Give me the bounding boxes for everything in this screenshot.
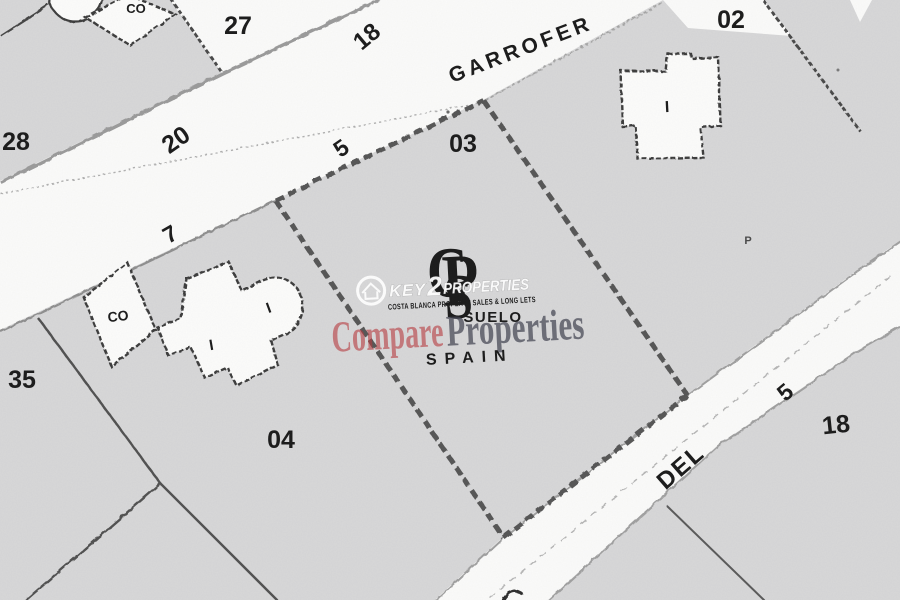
paper-grain-overlay bbox=[0, 0, 900, 600]
cadastral-map: 27 18 GARROFER 02 28 20 5 03 7 35 04 SUE… bbox=[0, 0, 900, 600]
map-canvas: 27 18 GARROFER 02 28 20 5 03 7 35 04 SUE… bbox=[0, 0, 900, 600]
